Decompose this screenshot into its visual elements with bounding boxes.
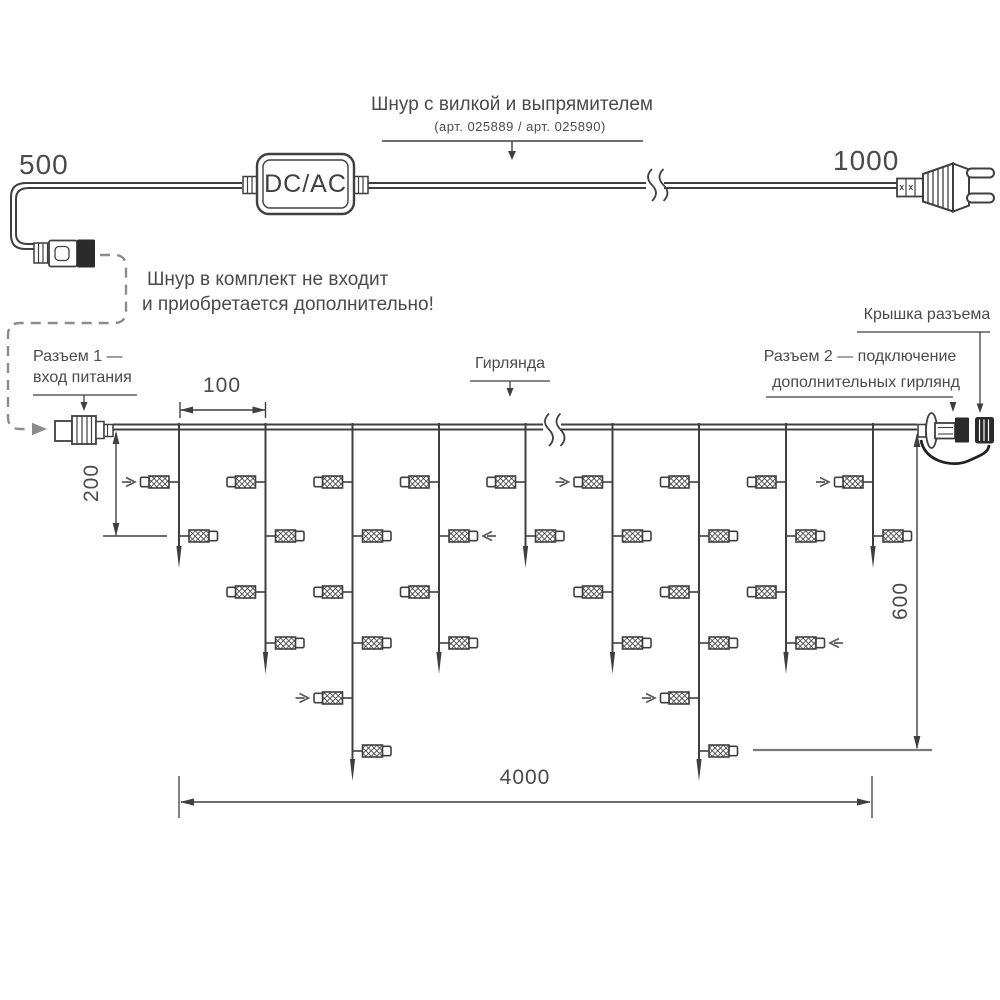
lamp-icon [669, 476, 689, 488]
lamp-direction-arrow-icon [122, 478, 135, 487]
dimension-4000-label: 4000 [500, 766, 551, 790]
lamp-icon [449, 637, 469, 649]
lamp-icon [363, 530, 383, 542]
drop-tip-icon [696, 759, 701, 781]
lamp-cap-icon [296, 638, 305, 647]
cord-break-icon [648, 169, 668, 201]
lamp-cap-icon [383, 531, 392, 540]
drop-tip-icon [523, 546, 528, 568]
drop-tip-icon [176, 546, 181, 568]
lamp-icon [189, 530, 209, 542]
dimension-600-label: 600 [889, 582, 913, 620]
lamp-cap-icon [574, 477, 583, 486]
lamp-cap-icon [729, 531, 738, 540]
drop-tip-icon [436, 652, 441, 674]
power-input-connector-icon [34, 240, 95, 268]
lamp-direction-arrow-icon [483, 532, 496, 541]
lamp-cap-icon [729, 746, 738, 755]
lamp-cap-icon [661, 477, 670, 486]
lamp-cap-icon [401, 477, 410, 486]
garland-technical-diagram: 500 1000 Шнур с вилкой и выпрямителем (а… [0, 0, 1000, 1000]
lamp-icon [709, 530, 729, 542]
lamp-icon [409, 476, 429, 488]
lamp-cap-icon [574, 587, 583, 596]
garland-drop [642, 423, 738, 781]
lamp-direction-arrow-icon [830, 639, 843, 648]
lamp-cap-icon [209, 531, 218, 540]
drop-tip-icon [263, 652, 268, 674]
garland-drops [122, 423, 912, 781]
lamp-icon [843, 476, 863, 488]
lamp-cap-icon [141, 477, 150, 486]
lamp-icon [583, 476, 603, 488]
lamp-icon [323, 586, 343, 598]
lamp-icon [796, 637, 816, 649]
cord-title: Шнур с вилкой и выпрямителем [371, 94, 653, 116]
lamp-icon [496, 476, 516, 488]
lamp-icon [709, 745, 729, 757]
lamp-icon [236, 476, 256, 488]
lamp-cap-icon [816, 531, 825, 540]
lamp-icon [669, 692, 689, 704]
lamp-icon [669, 586, 689, 598]
lamp-icon [883, 530, 903, 542]
garland-drop [556, 423, 652, 674]
lamp-cap-icon [661, 693, 670, 702]
lamp-cap-icon [835, 477, 844, 486]
connector1-leader [33, 395, 137, 411]
garland-drop [122, 423, 218, 568]
garland-drop [227, 423, 304, 674]
dimension-100 [180, 402, 266, 418]
lamp-cap-icon [661, 587, 670, 596]
dimension-200-label: 200 [80, 464, 104, 502]
lamp-icon [323, 692, 343, 704]
garland-drop [401, 423, 497, 674]
note-line2: и приобретается дополнительно! [142, 294, 434, 316]
lamp-icon [236, 586, 256, 598]
lamp-icon [363, 637, 383, 649]
connector2-label-line1: Разъем 2 — подключение [764, 348, 957, 366]
cord-length-1000-label: 1000 [833, 145, 899, 177]
lamp-icon [323, 476, 343, 488]
dc-ac-label: DC/AC [257, 154, 354, 214]
lamp-icon [583, 586, 603, 598]
lamp-cap-icon [314, 587, 323, 596]
lamp-cap-icon [816, 638, 825, 647]
lamp-cap-icon [487, 477, 496, 486]
connector1-label-line1: Разъем 1 — [33, 348, 123, 366]
garland-label-leader [470, 381, 550, 397]
garland-drop [487, 423, 564, 568]
lamp-icon [623, 637, 643, 649]
lamp-cap-icon [296, 531, 305, 540]
lamp-direction-arrow-icon [816, 478, 829, 487]
lamp-cap-icon [227, 587, 236, 596]
drop-tip-icon [783, 652, 788, 674]
lamp-cap-icon [469, 531, 478, 540]
lamp-icon [623, 530, 643, 542]
lamp-icon [709, 637, 729, 649]
lamp-icon [409, 586, 429, 598]
lamp-icon [756, 476, 776, 488]
mains-plug-icon [897, 164, 994, 212]
lamp-cap-icon [643, 638, 652, 647]
lamp-cap-icon [556, 531, 565, 540]
lamp-cap-icon [383, 746, 392, 755]
connector2-leader [766, 397, 956, 412]
cap-label-leader [857, 332, 990, 413]
lamp-direction-arrow-icon [642, 694, 655, 703]
lamp-icon [149, 476, 169, 488]
connector-cap-icon [975, 417, 994, 444]
cord-length-500-label: 500 [19, 149, 69, 181]
dashed-routing-line [8, 255, 126, 435]
note-line1: Шнур в комплект не входит [147, 269, 388, 291]
cord-subtitle: (арт. 025889 / арт. 025890) [434, 120, 606, 135]
lamp-icon [363, 745, 383, 757]
lamp-cap-icon [729, 638, 738, 647]
lamp-icon [796, 530, 816, 542]
drop-tip-icon [350, 759, 355, 781]
lamp-icon [276, 637, 296, 649]
drop-tip-icon [870, 546, 875, 568]
wire-break-icon [545, 414, 565, 447]
connector1-icon [55, 416, 113, 444]
garland-wire [113, 414, 917, 447]
lamp-icon [536, 530, 556, 542]
connector2-label-line2: дополнительных гирлянд [772, 374, 960, 392]
lamp-cap-icon [314, 693, 323, 702]
connector2-icon [918, 413, 994, 464]
garland-drop [816, 423, 912, 568]
dimension-100-label: 100 [203, 374, 241, 398]
lamp-cap-icon [469, 638, 478, 647]
cap-label: Крышка разъема [864, 306, 991, 324]
lamp-cap-icon [643, 531, 652, 540]
lamp-cap-icon [748, 587, 757, 596]
lamp-cap-icon [903, 531, 912, 540]
lamp-cap-icon [748, 477, 757, 486]
lamp-direction-arrow-icon [296, 694, 309, 703]
dashed-arrowhead-icon [32, 423, 47, 435]
lamp-cap-icon [401, 587, 410, 596]
lamp-direction-arrow-icon [556, 478, 569, 487]
lamp-cap-icon [383, 638, 392, 647]
lamp-cap-icon [227, 477, 236, 486]
lamp-icon [449, 530, 469, 542]
lamp-icon [276, 530, 296, 542]
garland-drop [748, 423, 844, 674]
garland-label: Гирлянда [475, 355, 545, 373]
connector1-label-line2: вход питания [33, 369, 132, 387]
lamp-icon [756, 586, 776, 598]
lamp-cap-icon [314, 477, 323, 486]
drop-tip-icon [610, 652, 615, 674]
garland-drop [296, 423, 392, 781]
cord-title-leader [382, 141, 643, 160]
